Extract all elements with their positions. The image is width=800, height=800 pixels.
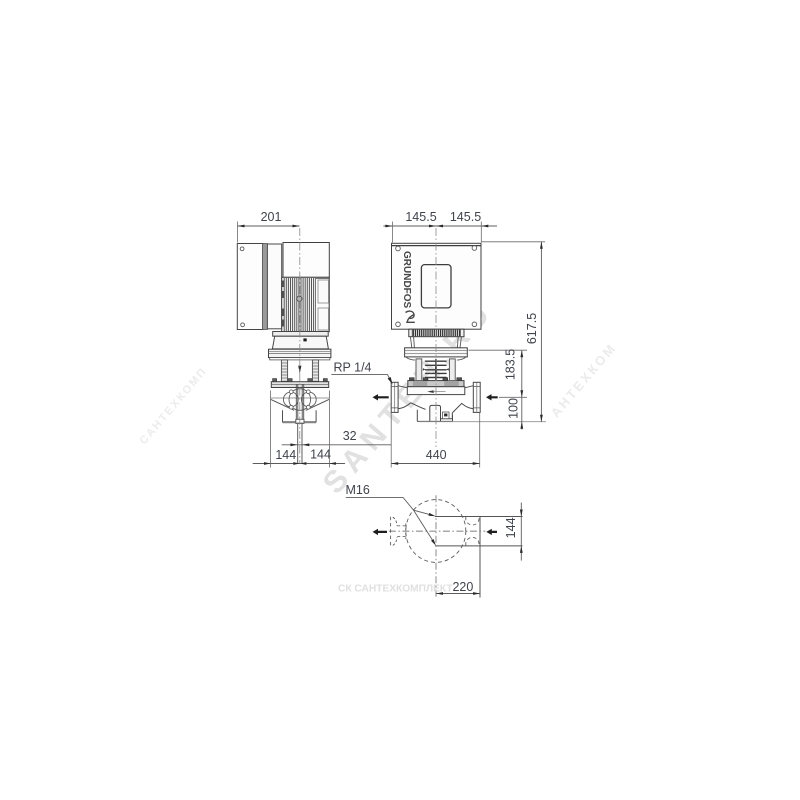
svg-text:GRUNDFOS: GRUNDFOS — [401, 251, 412, 309]
svg-text:100: 100 — [507, 398, 521, 419]
svg-text:145.5: 145.5 — [450, 210, 481, 224]
svg-text:440: 440 — [426, 448, 447, 462]
svg-text:617.5: 617.5 — [525, 313, 539, 344]
svg-text:32: 32 — [343, 429, 357, 443]
svg-text:СК САНТЕХКОМПЛЕКТ: СК САНТЕХКОМПЛЕКТ — [338, 584, 453, 595]
svg-text:RP 1/4: RP 1/4 — [334, 360, 372, 374]
svg-text:201: 201 — [261, 210, 282, 224]
svg-text:144: 144 — [275, 448, 296, 462]
svg-text:145.5: 145.5 — [405, 210, 436, 224]
svg-text:183.5: 183.5 — [504, 349, 518, 380]
svg-text:220: 220 — [452, 580, 473, 594]
svg-text:M16: M16 — [346, 483, 370, 497]
svg-text:144: 144 — [504, 517, 518, 538]
svg-text:144: 144 — [310, 448, 331, 462]
